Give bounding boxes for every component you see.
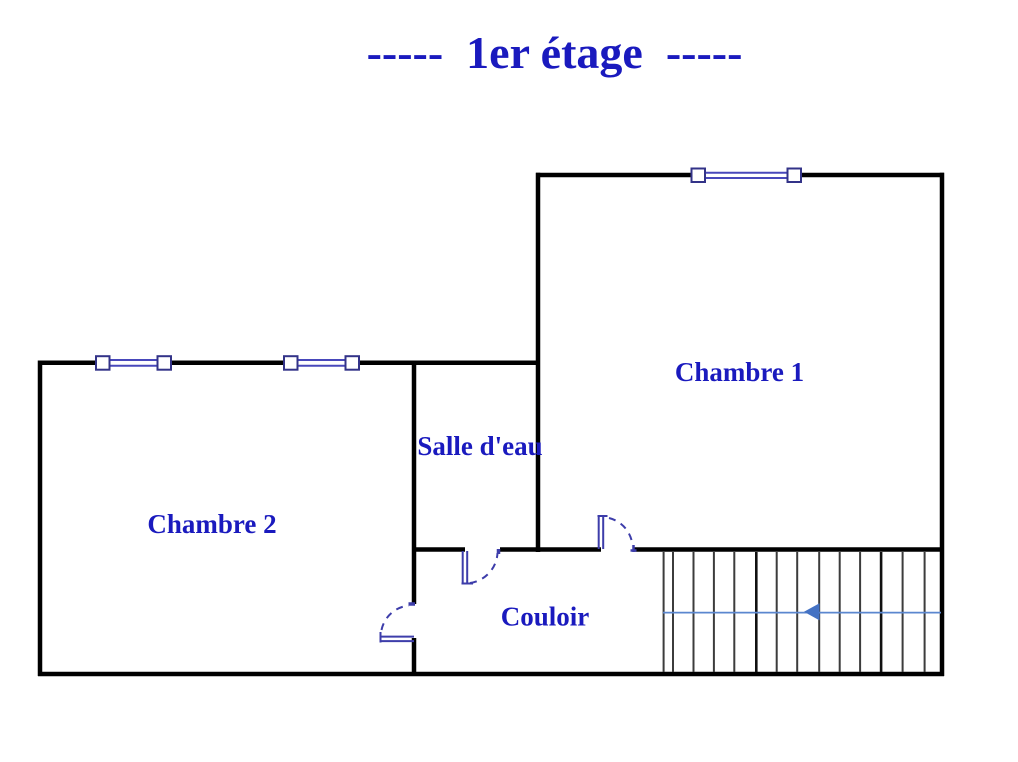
svg-text:Salle d'eau: Salle d'eau [417, 431, 542, 461]
svg-text:----- 1er étage -----: ----- 1er étage ----- [367, 27, 743, 78]
svg-text:Chambre 2: Chambre 2 [147, 509, 276, 539]
svg-text:Couloir: Couloir [501, 602, 590, 632]
svg-text:Chambre 1: Chambre 1 [675, 357, 804, 387]
